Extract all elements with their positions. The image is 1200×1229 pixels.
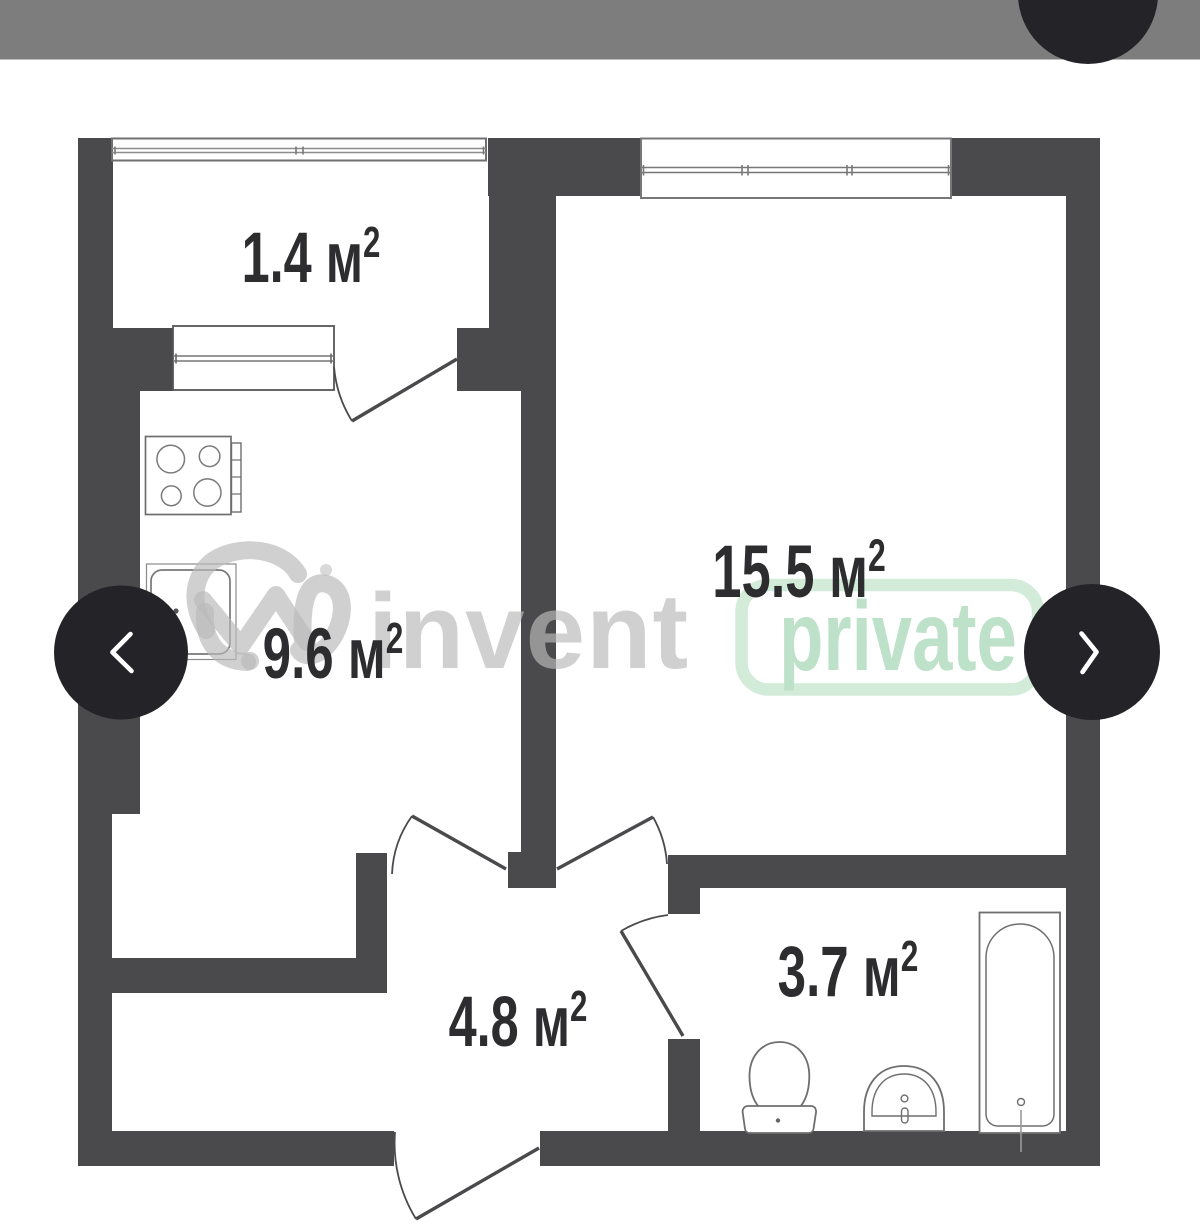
svg-text:9.6 м2: 9.6 м2: [263, 614, 404, 694]
svg-text:4.8 м2: 4.8 м2: [449, 982, 588, 1062]
svg-text:15.5 м2: 15.5 м2: [712, 530, 885, 613]
svg-text:1.4 м2: 1.4 м2: [242, 218, 381, 298]
svg-text:invent: invent: [368, 571, 689, 691]
svg-text:3.7 м2: 3.7 м2: [778, 932, 919, 1012]
